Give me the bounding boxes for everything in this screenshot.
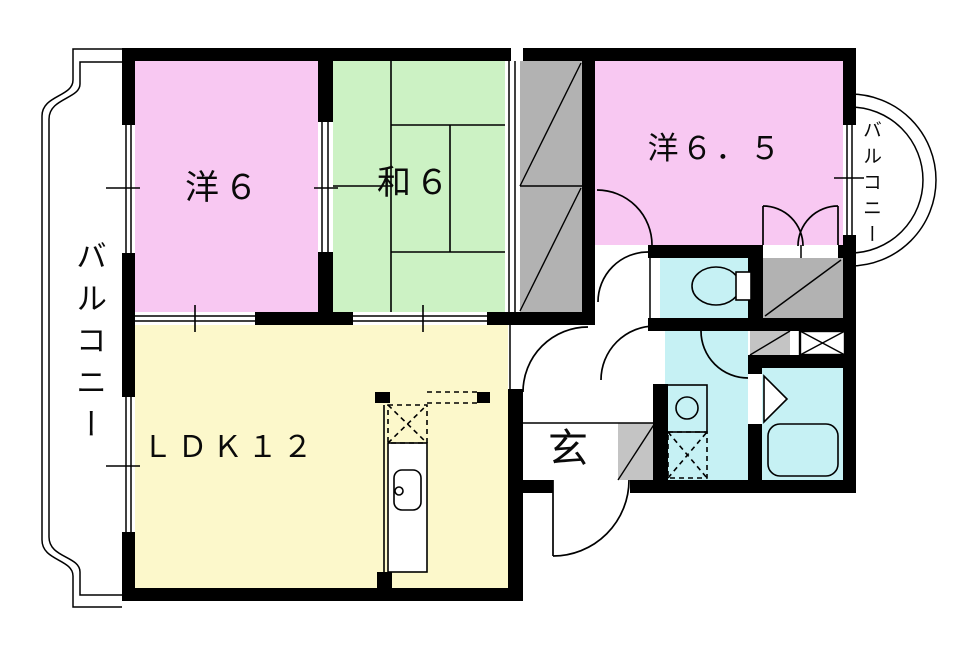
front-door-opening bbox=[553, 480, 630, 493]
door-washroom bbox=[601, 326, 655, 380]
room-label-entrance: 玄 bbox=[542, 427, 594, 471]
balcony-right-label: バルコニー bbox=[858, 112, 885, 257]
room-label-western-6-5: 洋６．５ bbox=[598, 132, 833, 166]
window-west-6-5 bbox=[843, 125, 856, 235]
bath-door-opening bbox=[748, 374, 762, 424]
window-west-bedroom bbox=[122, 125, 135, 253]
door-ldk bbox=[523, 327, 588, 392]
floor-plan-drawing bbox=[0, 0, 973, 646]
sliding-door-japanese-ldk bbox=[353, 312, 487, 325]
floor-plan: 洋６ 和６ 洋６．５ ＬＤＫ１２ 玄 バルコニー バルコニー bbox=[0, 0, 973, 646]
top-wall-notch bbox=[511, 48, 523, 61]
window-ldk bbox=[122, 397, 135, 532]
toilet-room-floor bbox=[660, 258, 748, 318]
balcony-left-label: バルコニー bbox=[66, 222, 111, 467]
room-label-western-6: 洋６ bbox=[154, 170, 294, 207]
room-label-ldk: ＬＤＫ１２ bbox=[120, 431, 340, 464]
kitchen-sink-icon bbox=[394, 470, 421, 510]
door-toilet bbox=[598, 252, 648, 302]
storage-box-icon bbox=[800, 331, 845, 355]
closet-track bbox=[505, 61, 520, 312]
sliding-partition-west-japanese bbox=[318, 122, 333, 252]
room-label-japanese-6: 和６ bbox=[345, 165, 485, 202]
